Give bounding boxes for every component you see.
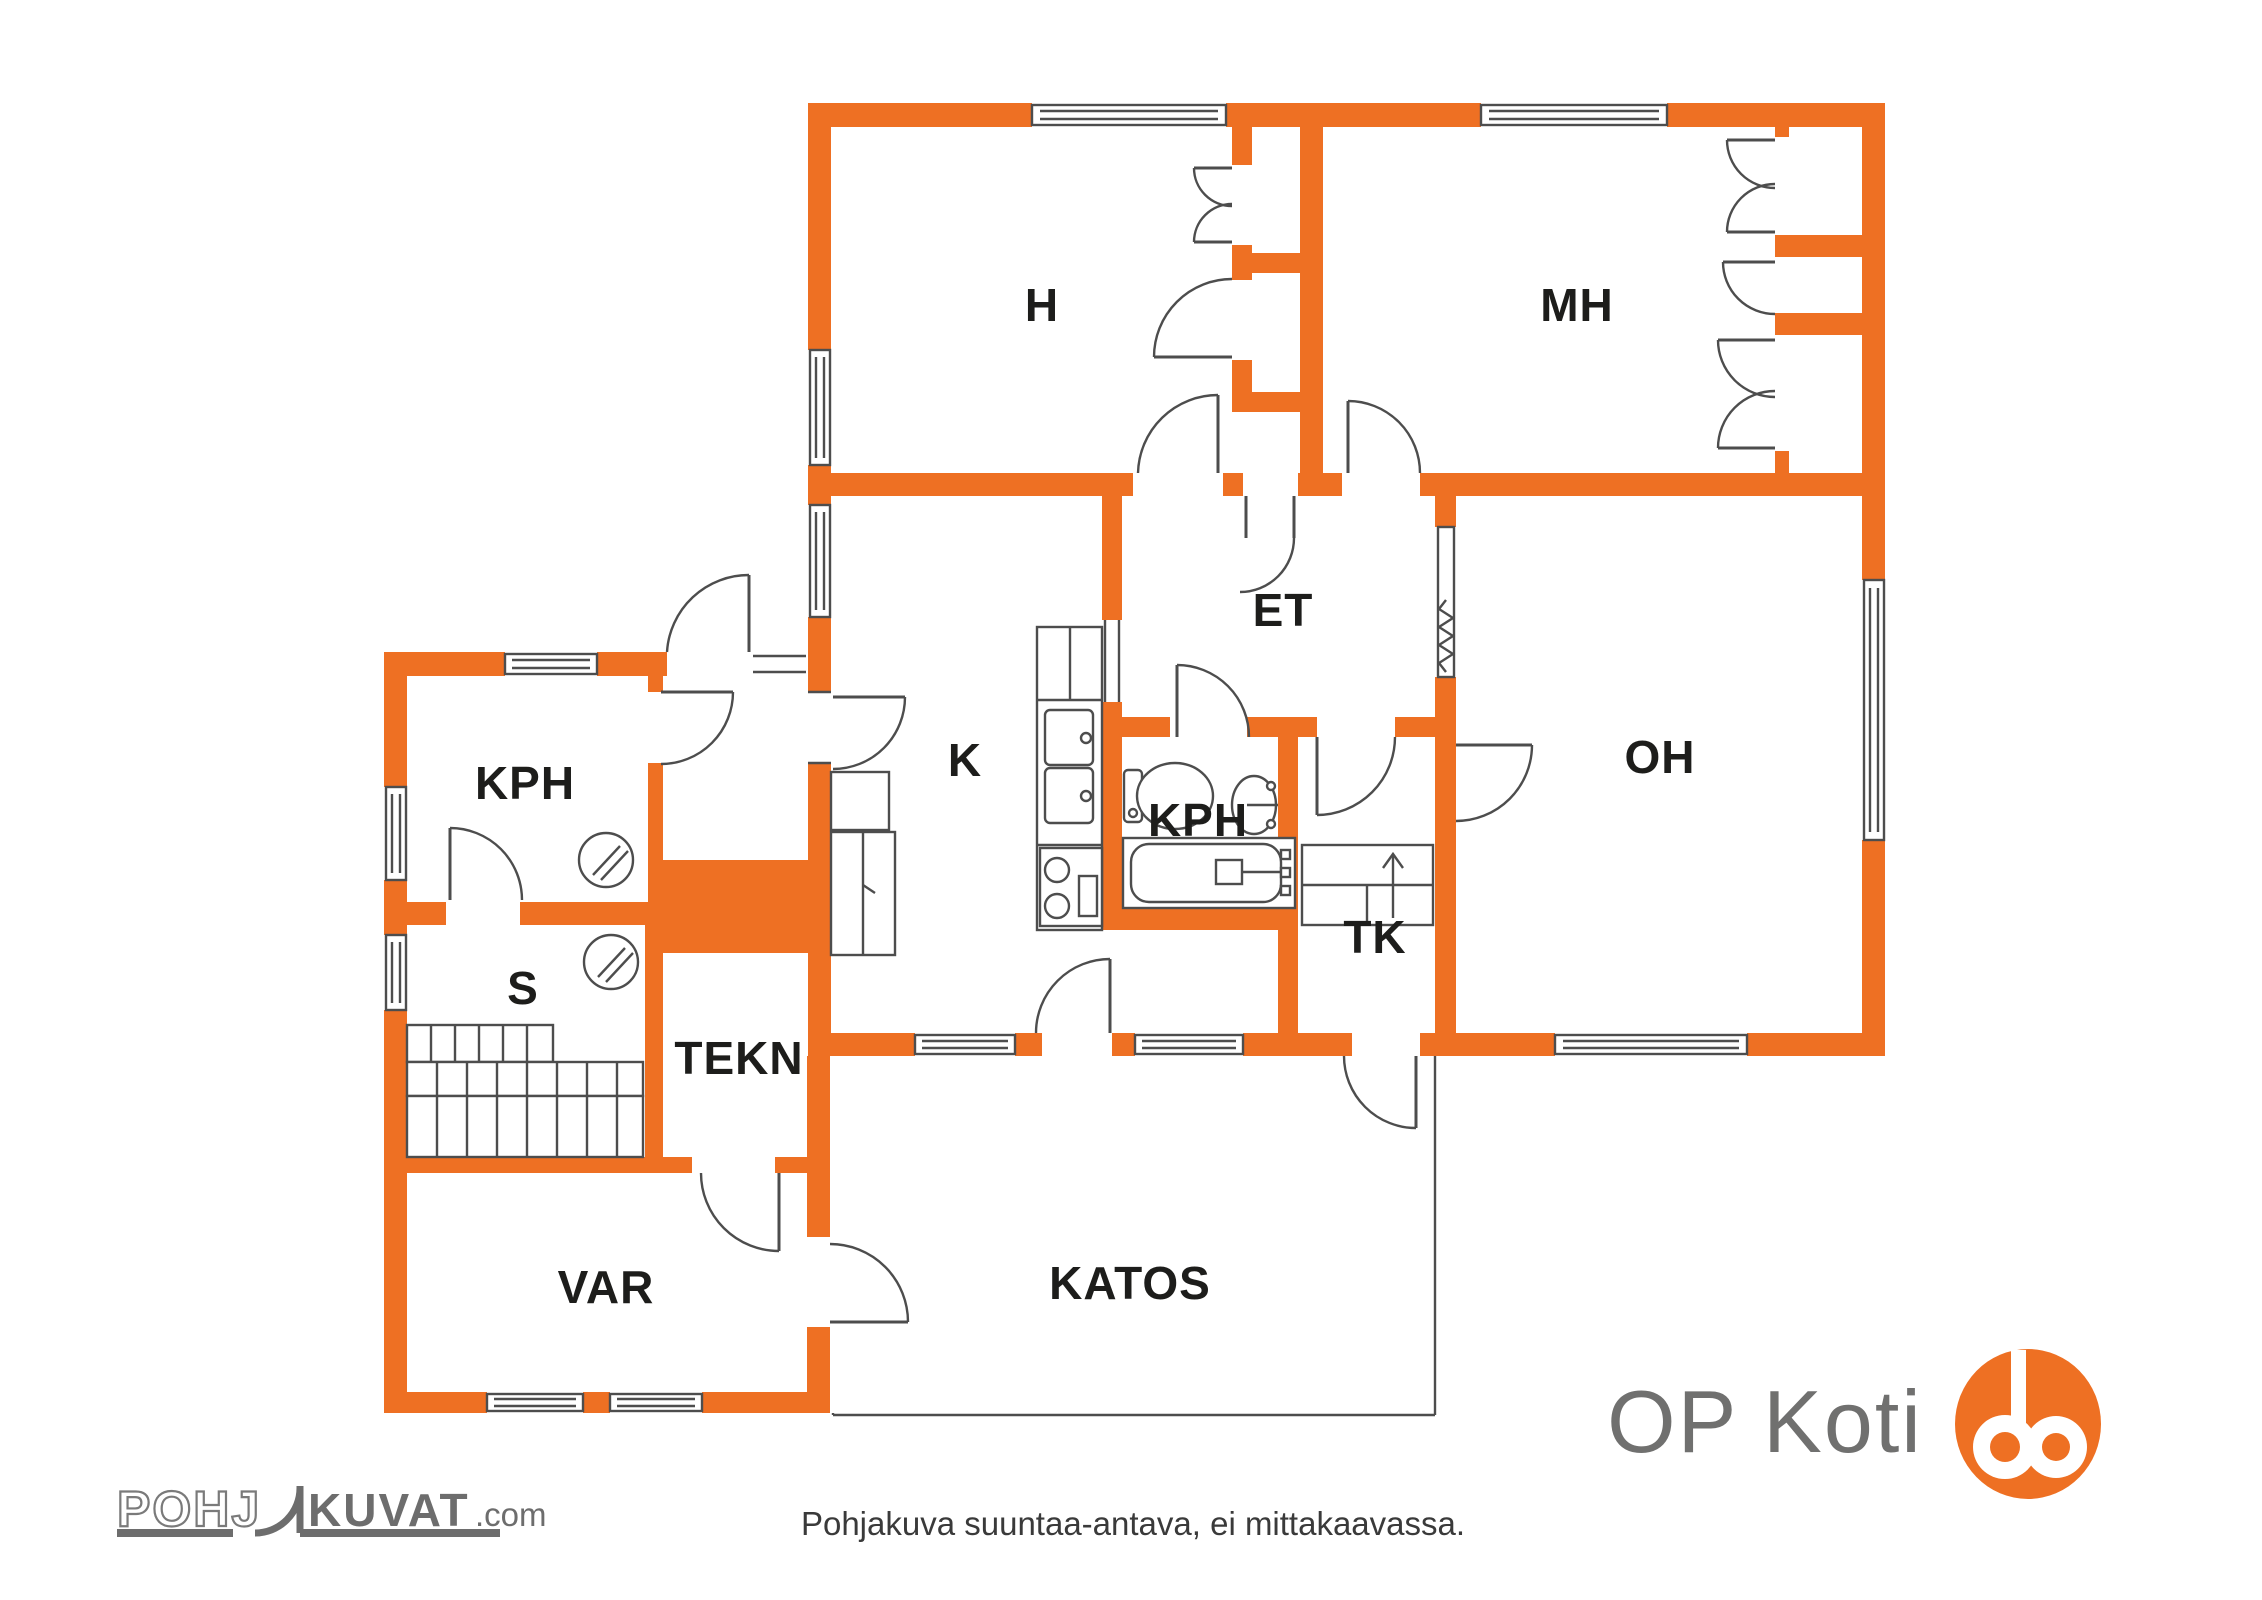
door-arc xyxy=(1344,1056,1416,1128)
door-arc xyxy=(1456,745,1532,821)
room-label-kph-annex: KPH xyxy=(475,757,575,809)
pohjakuvat-logo-suffix: .com xyxy=(475,1496,547,1533)
zigzag-partition-icon xyxy=(1438,527,1454,677)
room-label-tekn: TEKN xyxy=(674,1032,803,1084)
door-arc xyxy=(1138,395,1218,473)
door-arc xyxy=(1036,959,1110,1033)
door-arc xyxy=(661,692,733,764)
door-arc xyxy=(1194,168,1232,242)
pohjakuvat-logo: POHJ KUVAT .com xyxy=(117,1481,547,1537)
sauna-benches xyxy=(407,1025,643,1157)
window-icon xyxy=(1032,105,1226,125)
room-label-et: ET xyxy=(1253,584,1314,636)
sidelight-window-icon xyxy=(753,656,806,672)
room-label-h: H xyxy=(1025,279,1059,331)
room-label-k: K xyxy=(948,734,982,786)
op-koti-logo: OP Koti xyxy=(1607,1349,2101,1499)
door-arc xyxy=(1718,340,1775,448)
fixtures xyxy=(407,627,1433,1157)
mirror-icon xyxy=(584,935,638,989)
op-logo-icon xyxy=(1955,1349,2101,1499)
door-arc xyxy=(1723,262,1775,314)
window-icon xyxy=(487,1394,583,1411)
door-arc xyxy=(833,697,905,769)
mirror-icon xyxy=(579,833,633,887)
floor-plan: H MH ET K KPH OH TK KPH S TEKN VAR KATOS… xyxy=(0,0,2262,1600)
window-icon xyxy=(1555,1035,1747,1054)
window-icon xyxy=(1864,580,1884,840)
kitchen-cabinet xyxy=(831,772,895,955)
room-label-mh: MH xyxy=(1540,279,1614,331)
window-icon xyxy=(810,350,830,465)
room-label-katos: KATOS xyxy=(1049,1257,1211,1309)
door-arc xyxy=(1317,737,1395,815)
window-icon xyxy=(386,787,406,880)
window-icon xyxy=(610,1394,702,1411)
katos-outline xyxy=(833,1056,1435,1415)
window-icon xyxy=(505,654,597,674)
pohjakuvat-logo-outline-text: POHJ xyxy=(117,1481,261,1537)
window-icon xyxy=(810,505,830,617)
room-label-tk: TK xyxy=(1343,911,1406,963)
bathtub-icon xyxy=(1123,838,1295,908)
door-arc xyxy=(1727,140,1775,232)
window-icon xyxy=(386,935,406,1010)
op-koti-text: OP Koti xyxy=(1607,1372,1923,1471)
door-arc xyxy=(830,1244,908,1322)
pohjakuvat-logo-bold-text: KUVAT xyxy=(308,1484,470,1536)
door-arc xyxy=(1154,279,1232,357)
disclaimer-text: Pohjakuva suuntaa-antava, ei mittakaavas… xyxy=(801,1505,1465,1542)
window-icon xyxy=(1135,1035,1243,1054)
stove-icon xyxy=(1040,848,1102,926)
door-arc xyxy=(1240,496,1294,592)
floor-plan-page: H MH ET K KPH OH TK KPH S TEKN VAR KATOS… xyxy=(0,0,2262,1600)
room-label-var: VAR xyxy=(558,1261,655,1313)
door-arc-glyph-icon xyxy=(255,1486,300,1533)
pass-through-opening xyxy=(1105,620,1119,702)
room-label-oh: OH xyxy=(1625,731,1696,783)
door-arc xyxy=(667,575,749,652)
door-arc xyxy=(1348,401,1420,473)
window-icon xyxy=(1481,105,1667,125)
window-icon xyxy=(915,1035,1015,1054)
door-arc xyxy=(450,828,522,900)
door-arc xyxy=(1177,665,1249,737)
room-label-kph-mid: KPH xyxy=(1148,794,1248,846)
door-arc xyxy=(701,1173,779,1251)
room-label-s: S xyxy=(507,962,539,1014)
